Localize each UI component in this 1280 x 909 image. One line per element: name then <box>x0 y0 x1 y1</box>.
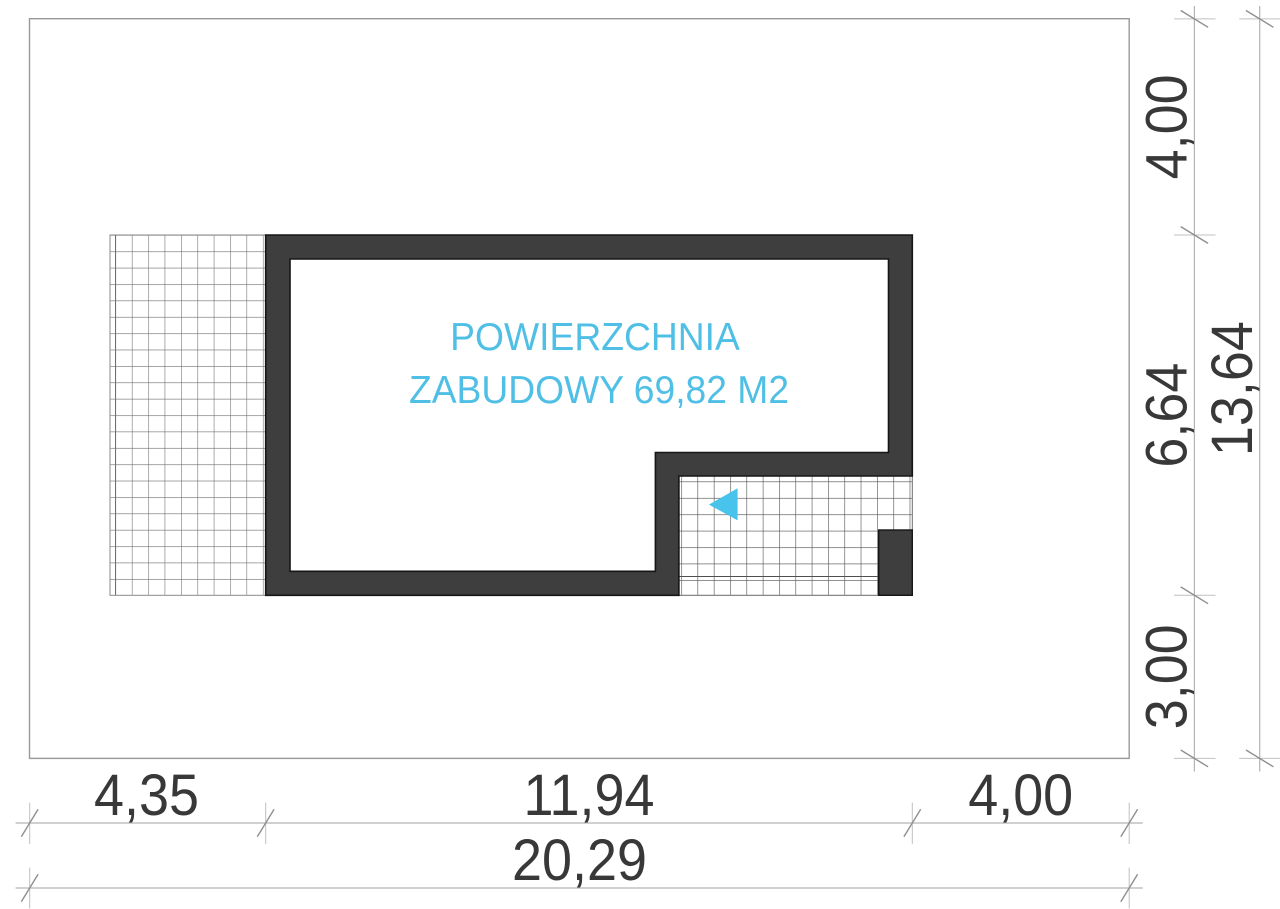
svg-text:4,00: 4,00 <box>1134 74 1199 179</box>
svg-text:4,35: 4,35 <box>94 762 199 827</box>
svg-text:20,29: 20,29 <box>512 827 647 892</box>
svg-text:4,00: 4,00 <box>968 762 1073 827</box>
svg-text:11,94: 11,94 <box>524 762 655 827</box>
svg-text:POWIERZCHNIA: POWIERZCHNIA <box>450 315 740 359</box>
svg-text:13,64: 13,64 <box>1199 321 1264 456</box>
svg-text:ZABUDOWY 69,82 M2: ZABUDOWY 69,82 M2 <box>409 368 789 412</box>
svg-text:3,00: 3,00 <box>1134 624 1199 729</box>
svg-text:6,64: 6,64 <box>1134 363 1199 468</box>
